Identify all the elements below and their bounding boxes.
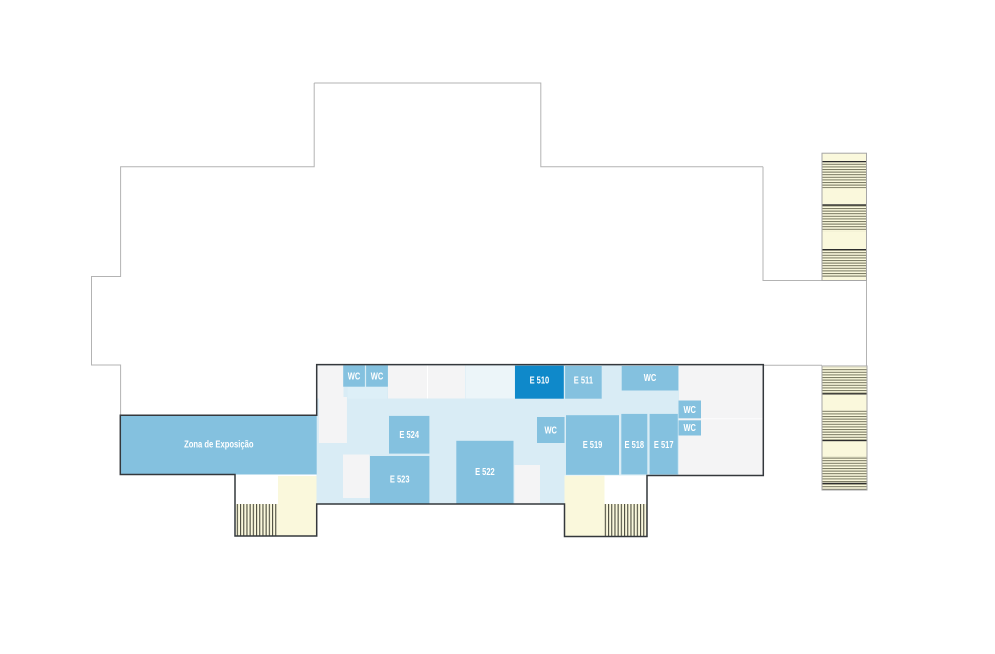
svg-text:E 518: E 518 xyxy=(625,440,645,451)
svg-text:WC: WC xyxy=(348,372,361,383)
svg-text:E 524: E 524 xyxy=(399,430,419,441)
svg-text:WC: WC xyxy=(544,426,557,437)
svg-text:Zona de Exposição: Zona de Exposição xyxy=(184,439,253,450)
svg-text:WC: WC xyxy=(371,372,384,383)
svg-text:E 511: E 511 xyxy=(574,375,594,386)
svg-text:E 519: E 519 xyxy=(583,440,603,451)
svg-text:WC: WC xyxy=(644,373,657,384)
svg-text:E 523: E 523 xyxy=(390,475,410,486)
svg-text:WC: WC xyxy=(683,423,696,434)
svg-text:E 522: E 522 xyxy=(475,467,495,478)
svg-text:WC: WC xyxy=(683,405,696,416)
svg-text:E 517: E 517 xyxy=(654,440,674,451)
svg-text:E 510: E 510 xyxy=(530,375,550,386)
